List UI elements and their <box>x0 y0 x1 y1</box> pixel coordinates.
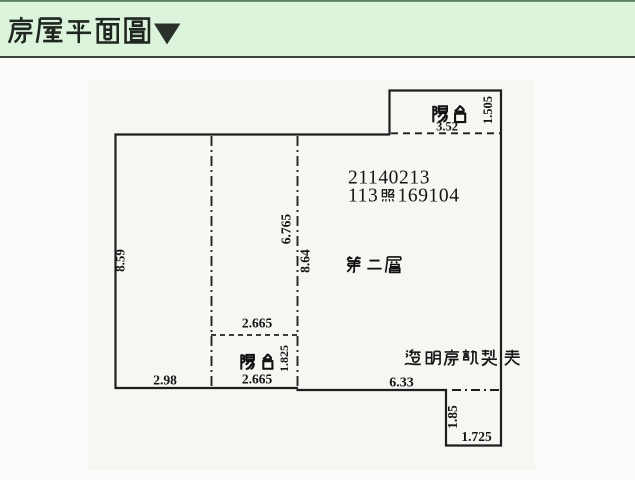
svg-text:169104: 169104 <box>398 186 460 207</box>
svg-text:113: 113 <box>348 186 378 207</box>
svg-text:6.765: 6.765 <box>279 214 294 245</box>
svg-text:2.665: 2.665 <box>242 316 273 331</box>
svg-text:8.64: 8.64 <box>298 249 313 273</box>
svg-text:1.725: 1.725 <box>461 429 492 444</box>
svg-text:2.665: 2.665 <box>242 372 273 387</box>
svg-text:1.825: 1.825 <box>277 345 291 372</box>
svg-text:6.33: 6.33 <box>389 376 414 391</box>
svg-text:1.85: 1.85 <box>445 405 460 429</box>
svg-text:1.505: 1.505 <box>481 96 495 124</box>
svg-text:8.59: 8.59 <box>113 249 128 272</box>
svg-text:2.98: 2.98 <box>153 373 177 388</box>
svg-text:3.52: 3.52 <box>436 120 458 134</box>
